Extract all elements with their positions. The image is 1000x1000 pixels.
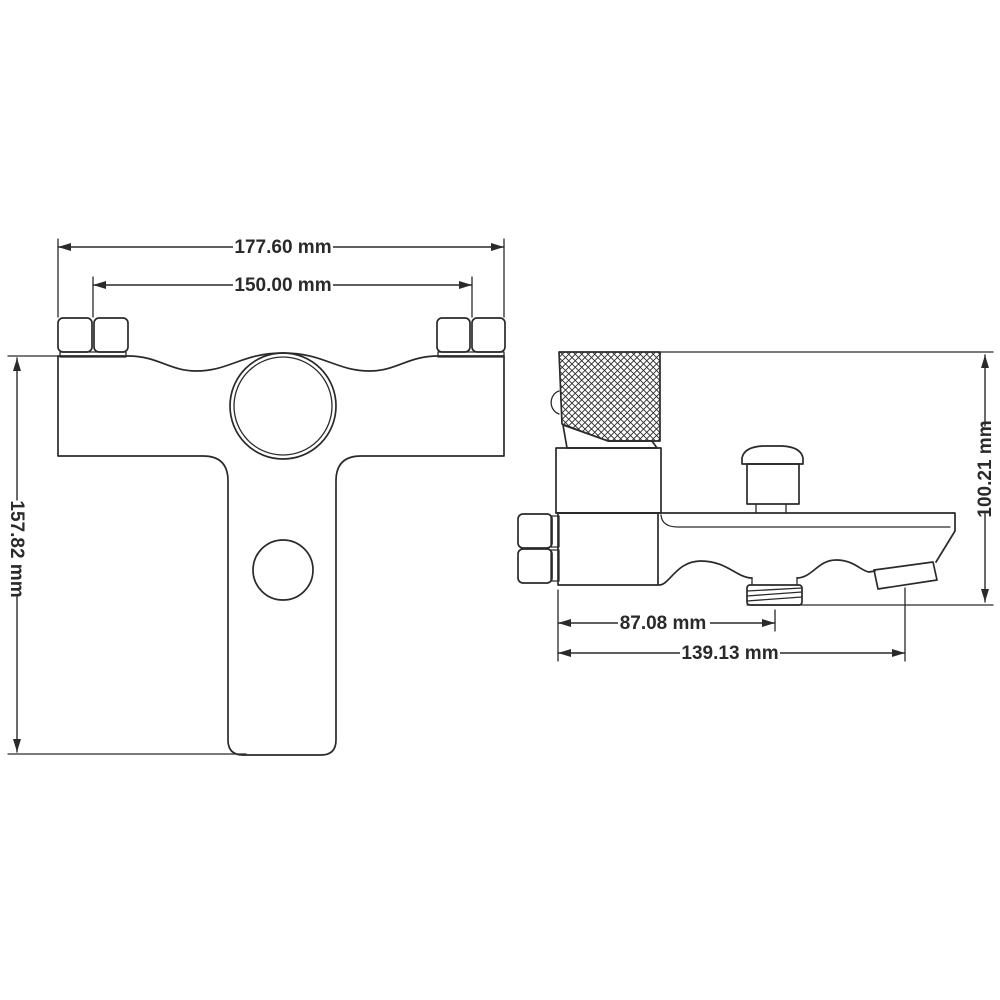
- nut-segment: [472, 318, 505, 352]
- valve-body: [558, 513, 658, 585]
- dim-label-side-height: 100.21 mm: [975, 420, 996, 517]
- shower-outlet-threads: [747, 578, 802, 605]
- handle-screw-circle: [253, 540, 313, 600]
- thread-neck: [752, 578, 797, 585]
- cartridge-circle-inner: [234, 357, 332, 455]
- faucet-body-front: [58, 353, 504, 755]
- mounting-nut-left: [58, 318, 128, 357]
- nut-segment: [518, 514, 552, 548]
- front-view: [58, 318, 505, 755]
- technical-drawing-page: 177.60 mm 150.00 mm 157.82 mm 100.21 mm …: [0, 0, 1000, 1000]
- faucet-dimension-drawing: 177.60 mm 150.00 mm 157.82 mm 100.21 mm …: [0, 0, 1000, 1000]
- spout-inner-edge: [661, 515, 950, 527]
- dim-label-front-outer-width: 177.60 mm: [234, 237, 331, 258]
- nut-segment: [94, 318, 128, 352]
- knob-stem: [756, 504, 786, 513]
- handle-left-bump: [551, 391, 559, 414]
- spout-bottom-arc-left: [659, 561, 752, 585]
- dim-label-front-height: 157.82 mm: [6, 500, 27, 597]
- dimension-front-height: 157.82 mm: [6, 356, 246, 754]
- diverter-knob: [742, 446, 803, 513]
- spout: [556, 513, 955, 585]
- dim-label-front-inner-width: 150.00 mm: [234, 275, 331, 296]
- spout-tip: [874, 562, 937, 589]
- side-view: [518, 352, 955, 605]
- nut-segment: [437, 318, 470, 352]
- knob-body: [747, 464, 799, 504]
- dim-label-side-outlet-offset: 87.08 mm: [620, 613, 707, 634]
- nut-segment: [58, 318, 92, 352]
- spout-bottom-arc-right: [797, 560, 875, 578]
- knob-cap: [742, 446, 803, 464]
- nut-segment: [518, 549, 552, 583]
- dimension-front-inner-width: 150.00 mm: [93, 274, 472, 317]
- mounting-nut-right: [437, 318, 505, 357]
- spout-top-edge: [556, 513, 955, 562]
- valve-column: [556, 448, 661, 513]
- thread-lines: [747, 588, 802, 601]
- wall-connector-nut: [518, 514, 559, 583]
- cartridge-circle-outer: [230, 353, 336, 459]
- knurled-handle: [559, 352, 660, 441]
- dim-label-side-overall-length: 139.13 mm: [681, 643, 778, 664]
- dimension-side-overall-length: 139.13 mm: [558, 588, 905, 664]
- dimension-side-height: 100.21 mm: [661, 352, 996, 605]
